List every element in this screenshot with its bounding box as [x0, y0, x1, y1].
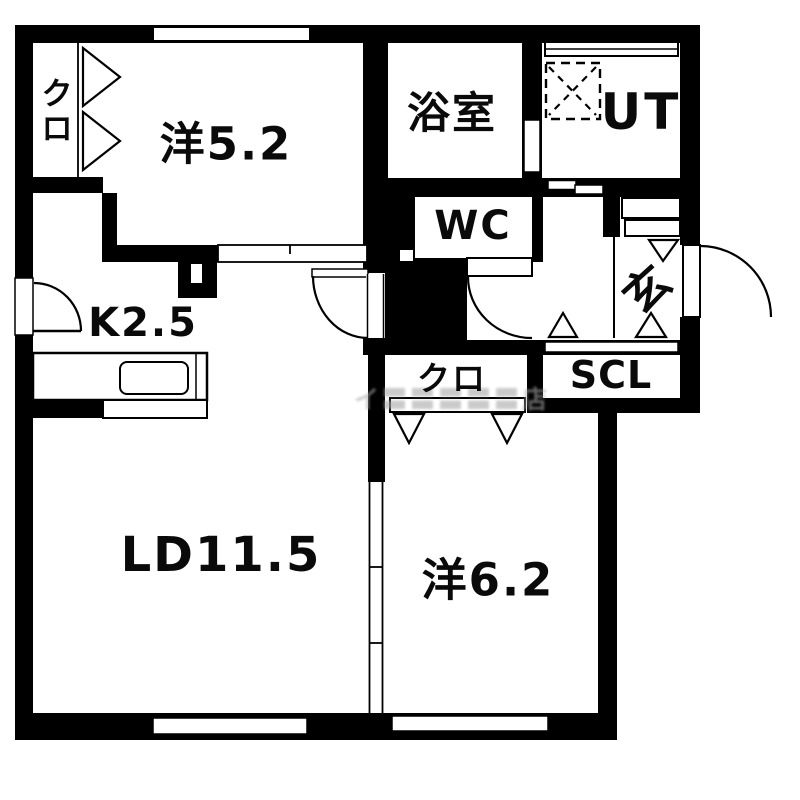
wall-wc-right [532, 197, 543, 262]
wc-door-leaf [467, 258, 532, 276]
ut-sliding-door-panel-1 [548, 181, 576, 190]
wall-bedroom-bath-divider [363, 43, 388, 273]
window-east-bedroom [392, 716, 548, 731]
hall-door-channel [366, 274, 385, 338]
label-bathroom: 浴室 [407, 79, 497, 141]
bathroom-door [524, 120, 540, 172]
kitchen-door-opening [15, 278, 33, 335]
wall-left-lower [15, 335, 33, 740]
wall-right-upper [680, 25, 700, 245]
closet-west-folding-triangle-2 [83, 112, 120, 170]
wall-step-horizontal [117, 245, 218, 262]
label-closet-west: クロ [40, 77, 74, 146]
label-utility: UT [601, 83, 682, 141]
label-west-bedroom: 洋5.2 [160, 108, 293, 173]
wall-east-bedroom-right [598, 398, 617, 740]
hall-door-leaf [312, 269, 368, 277]
hallway-step-triangle [549, 313, 577, 337]
entrance-triangle-top [649, 240, 678, 261]
wall-left-upper [15, 25, 33, 278]
entrance-door-arc [701, 246, 771, 317]
wc-door-arc [468, 277, 532, 338]
shoe-cabinet-2 [625, 220, 680, 236]
hall-door-arc [313, 276, 368, 338]
window-living [153, 718, 307, 734]
wall-closet-west-bottom [33, 177, 103, 193]
label-kitchen: K2.5 [88, 300, 198, 346]
wall-step-vertical [102, 193, 117, 262]
wall-entrance-upper [603, 197, 620, 237]
kitchen-counter-lower [103, 400, 207, 418]
floor-plan: 洋5.2 クロ 浴室 UT WC 玄 K2.5 クロ SCL LD11.5 洋6… [0, 0, 800, 800]
wall-kitchen-stub [33, 400, 103, 418]
washing-machine-icon [546, 63, 600, 119]
closet-mid-triangle-1 [394, 414, 424, 443]
shoe-cabinet-1 [622, 198, 680, 218]
wall-under-scl [543, 398, 700, 413]
wall-notch-wc [400, 250, 413, 261]
window-top-bedroom [153, 27, 310, 41]
scl-top-band [545, 342, 678, 352]
entrance-door-leaf [683, 245, 700, 317]
label-east-bedroom: 洋6.2 [422, 544, 555, 609]
label-wc: WC [434, 203, 511, 249]
kitchen-sink [120, 362, 188, 394]
wall-below-wc [385, 258, 467, 340]
closet-mid-triangle-2 [492, 414, 522, 443]
bedroom-sliding-door [218, 245, 367, 262]
wall-mid-horizontal [363, 178, 680, 197]
wall-top [15, 25, 700, 43]
label-closet-mid: クロ [417, 352, 487, 400]
wall-notch-pillar [191, 264, 202, 283]
label-living-dining: LD11.5 [121, 527, 322, 583]
ut-sliding-door-panel-2 [575, 185, 603, 194]
label-shoe-closet: SCL [570, 353, 652, 397]
closet-west-folding-triangle-1 [83, 48, 120, 106]
kitchen-door-arc [34, 283, 81, 331]
